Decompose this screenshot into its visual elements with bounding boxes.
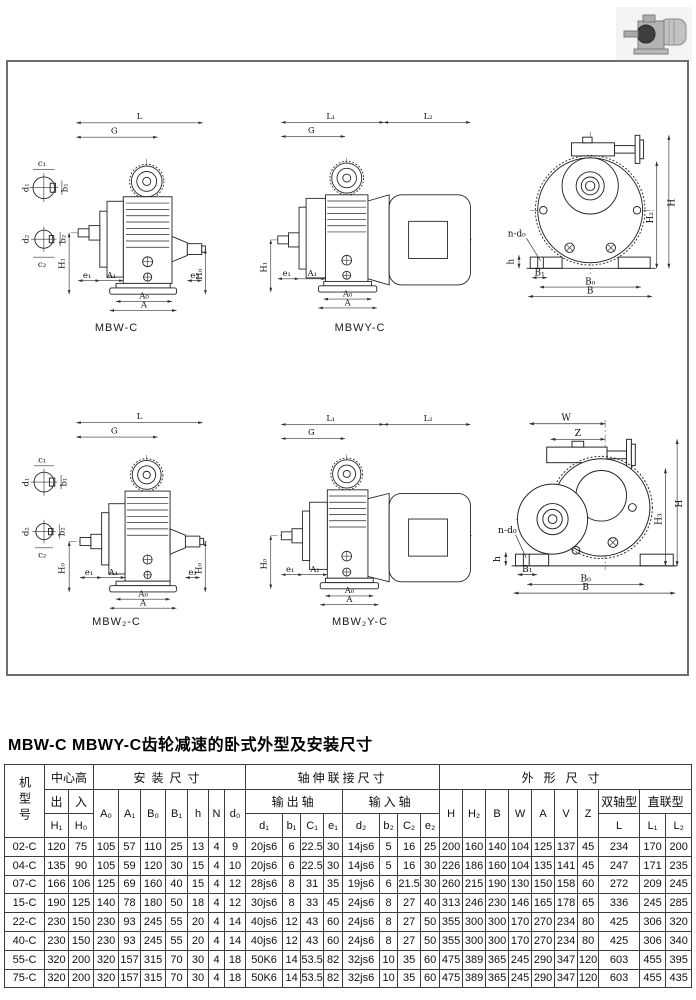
table-cell: 200 xyxy=(69,969,94,988)
dim-label-A1: A₁ xyxy=(309,564,319,574)
table-cell: 603 xyxy=(599,969,640,988)
table-cell: 04-C xyxy=(5,856,45,875)
dim-label-B: B xyxy=(587,287,594,297)
table-cell: 30 xyxy=(324,838,343,857)
table-cell: 14 xyxy=(283,969,301,988)
table-cell: 230 xyxy=(45,931,69,950)
drawing-end-view-2: W Z H H₃ n-d₀ h B₁ B₀ B xyxy=(496,414,686,597)
dim-label-e1: e₁ xyxy=(286,564,294,574)
table-cell: 93 xyxy=(119,931,141,950)
dim-label-G: G xyxy=(111,426,118,436)
table-cell: 22-C xyxy=(5,913,45,932)
table-cell: 306 xyxy=(640,913,666,932)
dim-label-H: H xyxy=(668,199,678,207)
table-cell: 4 xyxy=(209,856,225,875)
col-header-b1: b₁ xyxy=(283,814,301,838)
table-cell: 9 xyxy=(225,838,246,857)
col-header-B: B xyxy=(486,790,509,838)
table-cell: 315 xyxy=(141,950,166,969)
table-cell: 32js6 xyxy=(343,950,380,969)
table-cell: 6 xyxy=(283,838,301,857)
product-photo xyxy=(616,7,692,61)
table-cell: 245 xyxy=(141,931,166,950)
table-cell: 475 xyxy=(440,950,463,969)
table-cell: 245 xyxy=(141,913,166,932)
table-cell: 40js6 xyxy=(246,913,283,932)
col-header-out: 出 xyxy=(45,790,69,814)
dim-label-A: A xyxy=(344,297,352,307)
dim-label-A1: A₁ xyxy=(307,268,317,278)
table-cell: 43 xyxy=(301,931,324,950)
table-cell: 24js6 xyxy=(343,931,380,950)
table-cell: 190 xyxy=(486,875,509,894)
table-cell: 365 xyxy=(486,950,509,969)
table-cell: 226 xyxy=(440,856,463,875)
table-cell: 15 xyxy=(188,856,209,875)
table-cell: 246 xyxy=(463,894,486,913)
table-cell: 4 xyxy=(209,913,225,932)
table-cell: 300 xyxy=(486,931,509,950)
drawings-panel: c₁ b₁ d₁ b₂ c₂ d₂ L G xyxy=(6,60,689,676)
col-header-A1: A₁ xyxy=(119,790,141,838)
table-cell: 8 xyxy=(380,913,398,932)
table-cell: 475 xyxy=(440,969,463,988)
table-cell: 65 xyxy=(578,894,599,913)
dim-label-G: G xyxy=(111,127,118,137)
table-cell: 6 xyxy=(380,875,398,894)
table-cell: 320 xyxy=(94,950,119,969)
table-cell: 59 xyxy=(119,856,141,875)
table-cell: 20 xyxy=(188,913,209,932)
dim-label-d1: d₁ xyxy=(22,478,32,487)
dim-label-L: L xyxy=(137,112,143,122)
table-cell: 14 xyxy=(225,931,246,950)
table-cell: 22.5 xyxy=(301,856,324,875)
table-cell: 60 xyxy=(421,969,440,988)
table-cell: 4 xyxy=(209,969,225,988)
dim-label-n-d0: n-d₀ xyxy=(498,525,517,536)
table-cell: 245 xyxy=(509,969,532,988)
table-cell: 355 xyxy=(440,913,463,932)
table-cell: 455 xyxy=(640,969,666,988)
table-cell: 395 xyxy=(666,950,692,969)
table-cell: 12 xyxy=(283,931,301,950)
table-cell: 425 xyxy=(599,913,640,932)
dim-label-c1: c₁ xyxy=(38,455,46,465)
table-cell: 234 xyxy=(555,931,578,950)
table-cell: 313 xyxy=(440,894,463,913)
table-cell: 106 xyxy=(69,875,94,894)
dim-label-H1: H₁ xyxy=(258,262,268,273)
table-cell: 300 xyxy=(486,913,509,932)
table-cell: 110 xyxy=(141,838,166,857)
dim-label-G: G xyxy=(308,427,315,437)
drawing-mbw2y-c: L₁ L₂ G H₀ e₁ A₁ A₀ A xyxy=(246,412,474,611)
table-cell: 60 xyxy=(324,931,343,950)
table-cell: 70 xyxy=(166,969,188,988)
table-cell: 104 xyxy=(509,838,532,857)
table-cell: 425 xyxy=(599,931,640,950)
table-cell: 35 xyxy=(324,875,343,894)
table-cell: 21.5 xyxy=(398,875,421,894)
table-cell: 186 xyxy=(463,856,486,875)
table-cell: 40js6 xyxy=(246,931,283,950)
drawing-mbwy-c: L₁ L₂ G H₁ e₁ A₁ A₀ A xyxy=(246,110,474,315)
table-cell: 30js6 xyxy=(246,894,283,913)
col-header-Z: Z xyxy=(578,790,599,838)
table-cell: 75 xyxy=(69,838,94,857)
dim-label-b1: b₁ xyxy=(60,183,70,192)
table-cell: 340 xyxy=(666,931,692,950)
table-cell: 209 xyxy=(640,875,666,894)
dimension-table-body: 02-C120751055711025134920js6622.53014js6… xyxy=(5,838,692,988)
table-cell: 20 xyxy=(188,931,209,950)
dim-label-e1: e₁ xyxy=(282,268,290,278)
col-header-C2: C₂ xyxy=(398,814,421,838)
table-row: 75-C320200320157315703041850K61453.58232… xyxy=(5,969,692,988)
table-cell: 15-C xyxy=(5,894,45,913)
table-cell: 8 xyxy=(380,894,398,913)
table-cell: 104 xyxy=(509,856,532,875)
table-cell: 8 xyxy=(283,875,301,894)
dim-label-b1: b₁ xyxy=(60,478,70,487)
table-cell: 55 xyxy=(166,913,188,932)
table-cell: 60 xyxy=(578,875,599,894)
group-header-input-shaft: 输入轴 xyxy=(343,790,440,814)
table-cell: 190 xyxy=(45,894,69,913)
table-cell: 18 xyxy=(188,894,209,913)
group-header-output-shaft: 输出轴 xyxy=(246,790,343,814)
col-header-L1: L₁ xyxy=(640,814,666,838)
table-cell: 50 xyxy=(421,913,440,932)
col-header-H2: H₂ xyxy=(463,790,486,838)
table-cell: 80 xyxy=(578,913,599,932)
dim-label-c1: c₁ xyxy=(38,159,46,169)
dim-label-L: L xyxy=(137,412,143,422)
table-cell: 45 xyxy=(324,894,343,913)
col-header-H: H xyxy=(440,790,463,838)
dim-label-A: A xyxy=(345,594,353,604)
drawing-end-view-1: H H₂ n-d₀ h B₁ B₀ B xyxy=(504,124,682,304)
table-cell: 45 xyxy=(578,856,599,875)
table-cell: 30 xyxy=(188,950,209,969)
table-cell: 125 xyxy=(94,875,119,894)
table-cell: 12 xyxy=(283,913,301,932)
table-cell: 10 xyxy=(380,950,398,969)
col-header-L2: L₂ xyxy=(666,814,692,838)
table-cell: 270 xyxy=(532,913,555,932)
table-cell: 22.5 xyxy=(301,838,324,857)
col-header-h: h xyxy=(188,790,209,838)
table-cell: 245 xyxy=(640,894,666,913)
table-cell: 5 xyxy=(380,856,398,875)
table-cell: 30 xyxy=(188,969,209,988)
table-cell: 4 xyxy=(209,931,225,950)
col-header-N: N xyxy=(209,790,225,838)
caption-mbw2-c: MBW₂-C xyxy=(24,616,209,628)
col-header-H1: H₁ xyxy=(45,814,69,838)
table-cell: 82 xyxy=(324,969,343,988)
col-header-d1: d₁ xyxy=(246,814,283,838)
table-cell: 57 xyxy=(119,838,141,857)
table-cell: 14 xyxy=(225,913,246,932)
table-cell: 435 xyxy=(666,969,692,988)
col-header-b2: b₂ xyxy=(380,814,398,838)
table-cell: 347 xyxy=(555,969,578,988)
table-cell: 247 xyxy=(599,856,640,875)
table-cell: 50 xyxy=(421,931,440,950)
dim-label-L2: L₂ xyxy=(424,413,433,423)
dim-label-d1: d₁ xyxy=(22,183,32,192)
table-cell: 272 xyxy=(599,875,640,894)
dim-label-L2: L₂ xyxy=(424,111,433,121)
table-cell: 355 xyxy=(440,931,463,950)
dimension-table: 机型号 中心高 安装尺寸 轴伸联接尺寸 外形尺寸 出 入 A₀ A₁ B₀ B₁… xyxy=(4,764,692,988)
table-cell: 40-C xyxy=(5,931,45,950)
table-cell: 27 xyxy=(398,913,421,932)
drawing-mbw-c: c₁ b₁ d₁ b₂ c₂ d₂ L G xyxy=(24,110,209,316)
table-cell: 53.5 xyxy=(301,969,324,988)
group-header-outline: 外形尺寸 xyxy=(440,765,692,790)
table-cell: 137 xyxy=(555,838,578,857)
col-header-e2: e₂ xyxy=(421,814,440,838)
table-cell: 150 xyxy=(69,913,94,932)
table-cell: 170 xyxy=(509,931,532,950)
table-cell: 347 xyxy=(555,950,578,969)
table-cell: 75-C xyxy=(5,969,45,988)
dim-label-G: G xyxy=(308,125,315,135)
table-cell: 40 xyxy=(166,875,188,894)
col-header-in: 入 xyxy=(69,790,94,814)
dim-label-Z: Z xyxy=(575,428,582,439)
group-header-center-height: 中心高 xyxy=(45,765,94,790)
dim-label-b2: b₂ xyxy=(58,527,68,536)
dim-label-H: H xyxy=(674,500,685,508)
table-cell: 30 xyxy=(421,856,440,875)
table-cell: 33 xyxy=(301,894,324,913)
table-cell: 4 xyxy=(209,875,225,894)
table-cell: 320 xyxy=(45,969,69,988)
dim-label-A1: A₁ xyxy=(108,568,119,578)
dim-label-e1: e₁ xyxy=(83,271,92,281)
table-cell: 140 xyxy=(486,838,509,857)
table-cell: 4 xyxy=(209,838,225,857)
table-row: 07-C16610612569160401541228js68313519js6… xyxy=(5,875,692,894)
table-row: 02-C120751055711025134920js6622.53014js6… xyxy=(5,838,692,857)
dim-label-A1: A₁ xyxy=(106,271,117,281)
col-header-A: A xyxy=(532,790,555,838)
table-cell: 30 xyxy=(166,856,188,875)
table-cell: 35 xyxy=(398,950,421,969)
table-cell: 306 xyxy=(640,931,666,950)
table-cell: 260 xyxy=(440,875,463,894)
dim-label-H2: H₂ xyxy=(646,212,656,223)
dim-label-H1: H₁ xyxy=(58,258,68,269)
table-cell: 160 xyxy=(463,838,486,857)
col-header-V: V xyxy=(555,790,578,838)
table-cell: 230 xyxy=(94,931,119,950)
table-cell: 31 xyxy=(301,875,324,894)
table-cell: 200 xyxy=(666,838,692,857)
table-cell: 365 xyxy=(486,969,509,988)
table-cell: 25 xyxy=(421,838,440,857)
col-header-B1: B₁ xyxy=(166,790,188,838)
table-cell: 16 xyxy=(398,856,421,875)
col-header-d2: d₂ xyxy=(343,814,380,838)
dim-label-d2: d₂ xyxy=(22,527,32,536)
table-cell: 105 xyxy=(94,856,119,875)
col-header-e1: e₁ xyxy=(324,814,343,838)
table-cell: 200 xyxy=(69,950,94,969)
table-cell: 28js6 xyxy=(246,875,283,894)
dim-label-H0-left: H₀ xyxy=(58,563,68,574)
group-header-twin-shaft: 双轴型 xyxy=(599,790,640,814)
col-header-L: L xyxy=(599,814,640,838)
table-cell: 270 xyxy=(532,931,555,950)
table-cell: 230 xyxy=(94,913,119,932)
table-cell: 290 xyxy=(532,950,555,969)
dim-label-H0: H₀ xyxy=(258,558,268,569)
dim-label-H0: H₀ xyxy=(195,268,205,279)
table-cell: 170 xyxy=(509,913,532,932)
table-cell: 78 xyxy=(119,894,141,913)
table-cell: 160 xyxy=(141,875,166,894)
table-cell: 69 xyxy=(119,875,141,894)
table-cell: 55 xyxy=(166,931,188,950)
table-cell: 14 xyxy=(283,950,301,969)
col-header-model: 机型号 xyxy=(5,765,45,838)
dim-label-B: B xyxy=(582,582,589,593)
table-cell: 285 xyxy=(666,894,692,913)
dim-label-d2: d₂ xyxy=(22,235,32,244)
col-header-H0: H₀ xyxy=(69,814,94,838)
table-cell: 14js6 xyxy=(343,838,380,857)
col-header-A0: A₀ xyxy=(94,790,119,838)
table-cell: 158 xyxy=(555,875,578,894)
table-cell: 12 xyxy=(225,894,246,913)
table-cell: 20js6 xyxy=(246,856,283,875)
table-row: 40-C23015023093245552041440js612436024js… xyxy=(5,931,692,950)
table-cell: 50K6 xyxy=(246,950,283,969)
caption-mbw2y-c: MBW₂Y-C xyxy=(246,616,474,628)
table-cell: 166 xyxy=(45,875,69,894)
group-header-direct-coupled: 直联型 xyxy=(640,790,692,814)
table-cell: 14js6 xyxy=(343,856,380,875)
table-cell: 07-C xyxy=(5,875,45,894)
table-cell: 60 xyxy=(324,913,343,932)
group-header-shaft: 轴伸联接尺寸 xyxy=(246,765,440,790)
table-cell: 320 xyxy=(45,950,69,969)
table-cell: 15 xyxy=(188,875,209,894)
table-cell: 27 xyxy=(398,894,421,913)
table-cell: 603 xyxy=(599,950,640,969)
dim-label-B1: B₁ xyxy=(522,564,533,575)
dim-label-L1: L₁ xyxy=(326,111,335,121)
col-header-C1: C₁ xyxy=(301,814,324,838)
col-header-B0: B₀ xyxy=(141,790,166,838)
table-cell: 120 xyxy=(45,838,69,857)
table-cell: 170 xyxy=(640,838,666,857)
table-cell: 389 xyxy=(463,950,486,969)
table-cell: 45 xyxy=(578,838,599,857)
table-cell: 120 xyxy=(578,969,599,988)
table-cell: 10 xyxy=(380,969,398,988)
dim-label-A: A xyxy=(140,301,148,311)
dim-label-n-d0: n-d₀ xyxy=(508,229,526,239)
dim-label-h: h xyxy=(492,556,503,562)
dim-label-B1: B₁ xyxy=(535,268,545,278)
table-cell: 8 xyxy=(283,894,301,913)
table-cell: 50 xyxy=(166,894,188,913)
dim-label-c2: c₂ xyxy=(38,260,46,270)
table-cell: 235 xyxy=(666,856,692,875)
page-title: MBW-C MBWY-C齿轮减速的卧式外型及安装尺寸 xyxy=(8,731,373,755)
table-cell: 20js6 xyxy=(246,838,283,857)
table-cell: 146 xyxy=(509,894,532,913)
caption-mbw-c: MBW-C xyxy=(24,322,209,334)
table-cell: 4 xyxy=(209,894,225,913)
table-cell: 245 xyxy=(509,950,532,969)
table-cell: 230 xyxy=(45,913,69,932)
table-cell: 24js6 xyxy=(343,913,380,932)
table-cell: 315 xyxy=(141,969,166,988)
table-cell: 389 xyxy=(463,969,486,988)
table-cell: 300 xyxy=(463,913,486,932)
table-cell: 4 xyxy=(209,950,225,969)
table-cell: 300 xyxy=(463,931,486,950)
table-cell: 120 xyxy=(141,856,166,875)
table-cell: 150 xyxy=(532,875,555,894)
table-cell: 12 xyxy=(225,875,246,894)
col-header-d0: d₀ xyxy=(225,790,246,838)
table-cell: 105 xyxy=(94,838,119,857)
table-cell: 60 xyxy=(421,950,440,969)
table-cell: 30 xyxy=(421,875,440,894)
dim-label-e1: e₁ xyxy=(85,568,93,578)
table-cell: 245 xyxy=(666,875,692,894)
table-cell: 141 xyxy=(555,856,578,875)
dim-label-c2: c₂ xyxy=(38,551,46,561)
table-cell: 40 xyxy=(421,894,440,913)
table-cell: 90 xyxy=(69,856,94,875)
table-row: 15-C19012514078180501841230js68334524js6… xyxy=(5,894,692,913)
table-cell: 180 xyxy=(141,894,166,913)
dim-label-H3: H₃ xyxy=(654,513,665,525)
table-cell: 336 xyxy=(599,894,640,913)
table-cell: 53.5 xyxy=(301,950,324,969)
dim-label-H0-right: H₀ xyxy=(195,563,205,574)
dim-label-b2: b₂ xyxy=(59,235,69,244)
dim-label-W: W xyxy=(561,412,571,423)
table-cell: 140 xyxy=(94,894,119,913)
table-cell: 32js6 xyxy=(343,969,380,988)
table-cell: 171 xyxy=(640,856,666,875)
table-cell: 234 xyxy=(555,913,578,932)
table-cell: 320 xyxy=(94,969,119,988)
table-cell: 320 xyxy=(666,913,692,932)
table-cell: 125 xyxy=(69,894,94,913)
dim-label-h: h xyxy=(506,259,516,265)
table-row: 04-C1359010559120301541020js6622.53014js… xyxy=(5,856,692,875)
table-cell: 150 xyxy=(69,931,94,950)
dim-label-A: A xyxy=(139,598,147,608)
col-header-model-label: 机型号 xyxy=(19,776,31,824)
table-cell: 18 xyxy=(225,969,246,988)
table-cell: 157 xyxy=(119,969,141,988)
dim-label-L1: L₁ xyxy=(326,413,335,423)
table-cell: 215 xyxy=(463,875,486,894)
table-cell: 130 xyxy=(509,875,532,894)
